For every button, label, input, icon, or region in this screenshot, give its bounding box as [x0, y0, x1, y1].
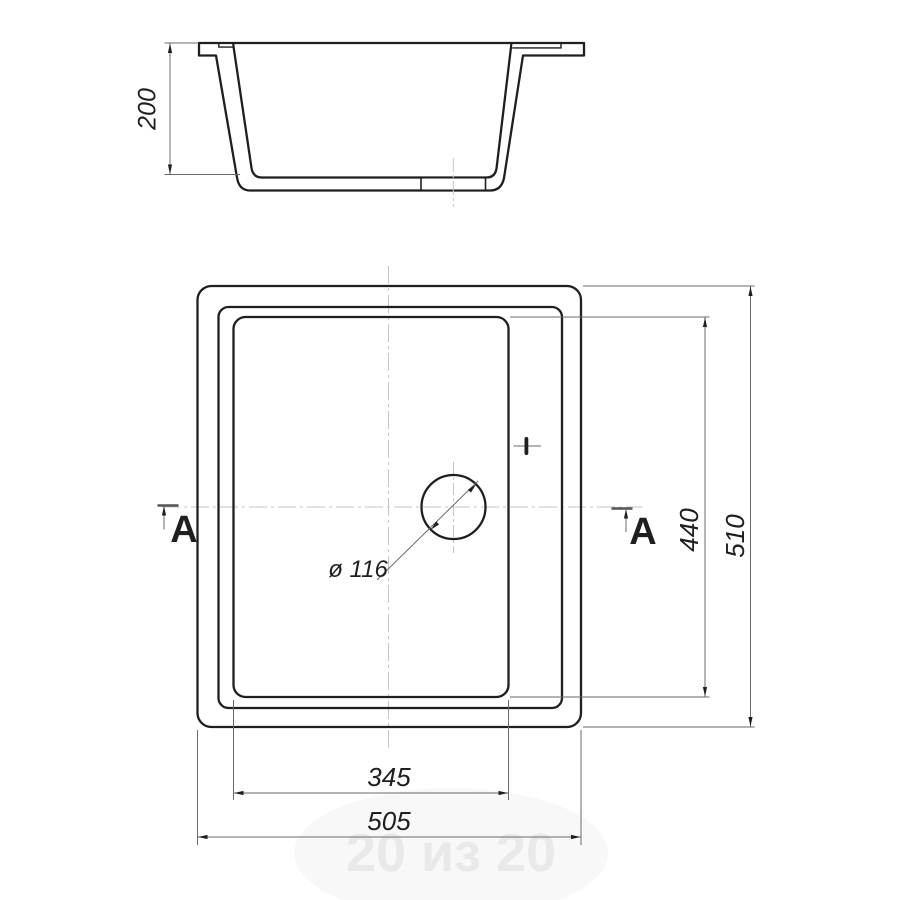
arrowhead-down: [748, 717, 752, 727]
section-letter-left: A: [170, 509, 197, 551]
section-arrowhead: [624, 509, 628, 519]
dimension-bowl-width-label: 345: [367, 762, 411, 792]
drain-opening: [421, 158, 486, 207]
dimension-overall-length-label: 510: [720, 514, 750, 558]
arrowhead-up: [168, 43, 172, 53]
tap-hole-tick: [525, 437, 529, 455]
rim-recess-right: [512, 44, 560, 47]
section-view: 200: [134, 43, 585, 207]
arrowhead-upper: [468, 484, 476, 492]
sink-technical-drawing: 20 из 20 200: [0, 0, 900, 900]
drain: ø 116: [328, 462, 485, 583]
watermark: 20 из 20: [294, 788, 608, 900]
drain-diameter-label: ø 116: [328, 556, 388, 583]
section-marker-left: A: [158, 506, 198, 552]
arrowhead-left: [234, 791, 244, 795]
section-body-hatched: [199, 43, 584, 191]
section-marker-right: A: [612, 509, 657, 554]
arrowhead-down: [168, 165, 172, 175]
dimension-depth-label: 200: [134, 88, 162, 131]
dimension-overall-width-label: 505: [367, 806, 411, 836]
arrowhead-up: [703, 318, 707, 328]
arrowhead-down: [703, 687, 707, 697]
plan-view: ø 116 A A 345: [158, 266, 755, 845]
arrowhead-left: [198, 835, 208, 839]
tap-hole-mark: [514, 437, 542, 455]
section-letter-right: A: [629, 511, 656, 553]
drawing-canvas: 20 из 20 200: [0, 0, 900, 900]
dimension-bowl-width: 345: [234, 700, 509, 800]
diameter-leader-line: [377, 481, 478, 580]
arrowhead-up: [748, 287, 752, 297]
dimension-bowl-length-label: 440: [674, 508, 704, 552]
